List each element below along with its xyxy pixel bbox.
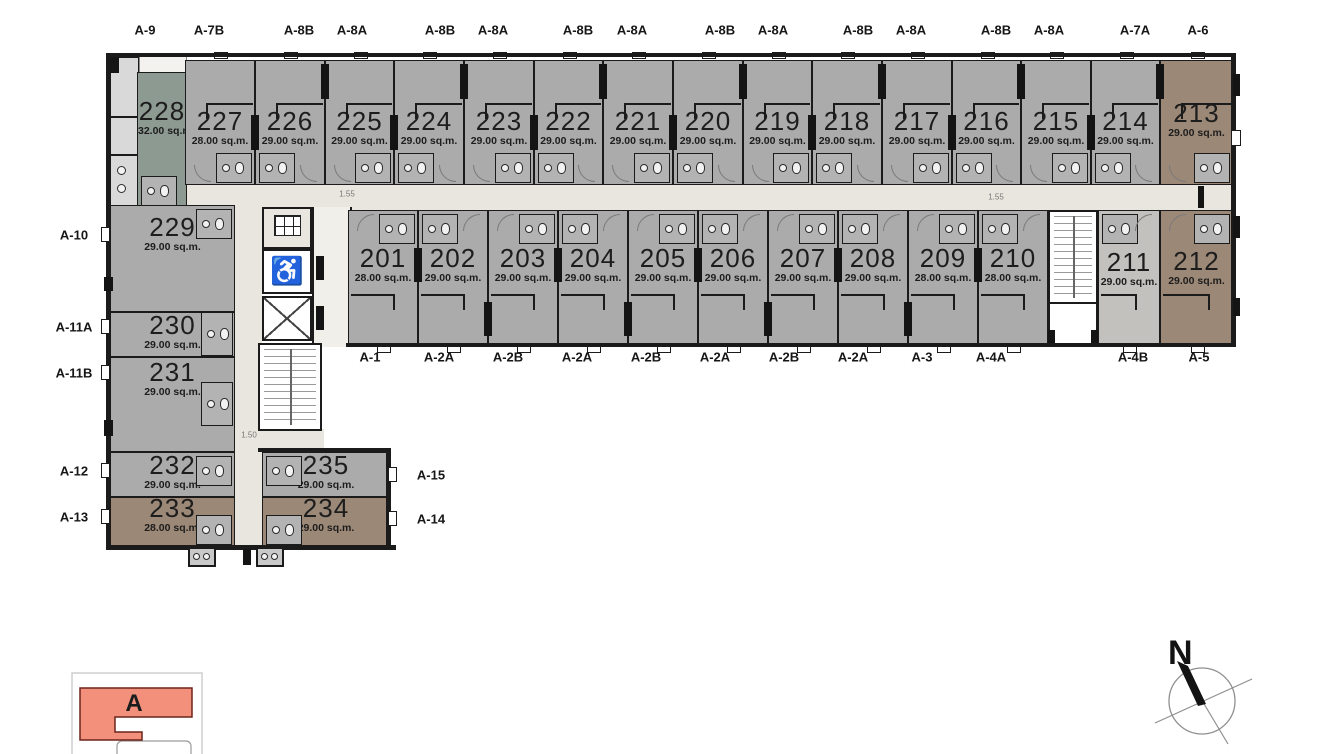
bathroom [562,214,598,244]
ac-fan [193,553,200,560]
unit-number: 214 [1092,108,1159,134]
bathroom [1102,214,1138,244]
door-arc [473,165,490,182]
window-marker [101,463,110,478]
wall-pier [624,302,632,336]
outer-wall [258,448,390,452]
sink-fixture [404,164,412,172]
toilet-fixture [235,162,244,174]
unit-208: 20829.00 sq.m. [838,210,908,345]
compass-north-label: N [1168,634,1193,672]
wall-pier [414,248,422,282]
wall-pier [878,64,886,99]
type-label-A-8A: A-8A [478,23,508,38]
sink-fixture [1058,164,1066,172]
partition-wall [981,294,1025,296]
type-label-A-4B: A-4B [1118,350,1148,365]
unit-222: 22229.00 sq.m. [534,60,603,185]
wall-pier [834,248,842,282]
wall-pier [104,420,113,436]
toilet-fixture [417,162,426,174]
type-label-A-12: A-12 [60,464,88,479]
partition-wall [111,116,138,118]
partition-wall [743,294,745,310]
type-label-A-5: A-5 [1189,350,1210,365]
wall-pier [599,64,607,99]
type-label-A-4A: A-4A [976,350,1006,365]
sink-fixture [665,225,673,233]
unit-206: 20629.00 sq.m. [698,210,768,345]
wall-pier [974,248,982,282]
type-label-A-14: A-14 [417,512,445,527]
toilet-fixture [932,162,941,174]
unit-number: 220 [674,108,742,134]
partition-wall [555,103,601,105]
type-label-A-7A: A-7A [1120,23,1150,38]
door-arc [603,214,620,231]
unit-number: 211 [1099,249,1159,275]
bathroom [956,153,992,183]
toilet-fixture [818,223,827,235]
partition-wall [764,103,810,105]
door-arc [752,165,769,182]
unit-226: 22629.00 sq.m. [255,60,325,185]
type-label-A-2A: A-2A [838,350,868,365]
sink-fixture [962,164,970,172]
partition-wall [701,294,745,296]
unit-202: 20229.00 sq.m. [418,210,488,345]
wall-pier [460,64,468,99]
unit-233: 23328.00 sq.m. [110,497,235,547]
unit-number: 223 [465,108,533,134]
partition-wall [555,103,557,119]
wall-pier [694,248,702,282]
unit-label: 22129.00 sq.m. [604,108,672,147]
sink-fixture [1101,164,1109,172]
type-label-A-2B: A-2B [769,350,799,365]
unit-label: 21829.00 sq.m. [813,108,881,147]
type-label-A-8B: A-8B [843,23,873,38]
stair-divider [290,349,292,425]
unit-number: 228 [138,98,186,124]
sink-fixture [428,225,436,233]
wall-pier [484,302,492,336]
unit-number: 209 [909,245,977,271]
partition-wall [491,294,535,296]
partition-wall [673,294,675,310]
unit-label: 21229.00 sq.m. [1161,248,1232,287]
unit-number: 201 [349,245,417,271]
partition-wall [603,294,605,310]
unit-area: 29.00 sq.m. [699,272,767,284]
partition-wall [346,103,348,119]
door-arc [637,214,654,231]
type-label-A-8B: A-8B [981,23,1011,38]
unit-label: 22429.00 sq.m. [395,108,463,147]
toilet-fixture [220,398,229,410]
unit-216: 21629.00 sq.m. [952,60,1021,185]
wall-pier [764,302,772,336]
unit-number: 207 [769,245,837,271]
toilet-fixture [721,223,730,235]
partition-wall [1042,103,1089,105]
bathroom [519,214,555,244]
partition-wall [973,103,975,119]
bathroom [196,456,232,486]
partition-wall [953,294,955,310]
unit-label: 20529.00 sq.m. [629,245,697,284]
bathroom [216,153,252,183]
unit-232: 23229.00 sq.m. [110,452,235,497]
partition-wall [911,294,955,296]
sink-fixture [265,164,273,172]
window-marker [388,467,397,482]
toilet-fixture [678,223,687,235]
type-label-A-2A: A-2A [562,350,592,365]
type-label-A-8B: A-8B [705,23,735,38]
door-arc [891,165,908,182]
unit-number: 225 [326,108,393,134]
window-marker [101,319,110,334]
bathroom [939,214,975,244]
unit-220: 22029.00 sq.m. [673,60,743,185]
unit-number: 203 [489,245,557,271]
toilet-fixture [215,465,224,477]
type-label-A-2A: A-2A [424,350,454,365]
outer-wall [108,53,1235,57]
bathroom [422,214,458,244]
unit-area: 29.00 sq.m. [395,135,463,147]
wall-pier [243,549,251,565]
sink-fixture [708,225,716,233]
balcony-vent [1007,346,1021,353]
ac-ledge [1233,216,1240,238]
partition-wall [833,103,835,119]
wall-pier [904,302,912,336]
unit-number: 210 [979,245,1047,271]
corridor-connector [262,429,324,450]
unit-234: 23429.00 sq.m. [262,497,390,547]
toilet-fixture [160,185,169,197]
unit-label: 21329.00 sq.m. [1161,100,1232,139]
bathroom [266,515,302,545]
washer-fixture [117,184,126,193]
unit-230: 23029.00 sq.m. [110,312,235,357]
type-label-A-8A: A-8A [758,23,788,38]
unit-label: 21929.00 sq.m. [744,108,811,147]
sink-fixture [207,330,215,338]
sink-fixture [919,164,927,172]
unit-label: 22229.00 sq.m. [535,108,602,147]
partition-wall [421,294,465,296]
partition-wall [694,103,741,105]
sink-fixture [272,526,280,534]
unit-number: 218 [813,108,881,134]
wheelchair-icon: ♿ [270,258,304,285]
toilet-fixture [215,524,224,536]
type-label-A-3: A-3 [912,350,933,365]
unit-number: 226 [256,108,324,134]
unit-label: 20928.00 sq.m. [909,245,977,284]
partition-wall [393,294,395,310]
unit-area: 32.00 sq.m. [138,125,186,137]
partition-wall [631,294,675,296]
partition-wall [206,103,253,105]
type-label-A-11A: A-11A [56,320,93,335]
unit-label: 20329.00 sq.m. [489,245,557,284]
unit-224: 22429.00 sq.m. [394,60,464,185]
unit-area: 29.00 sq.m. [953,135,1020,147]
key-other-building-outline [117,741,191,754]
unit-area: 28.00 sq.m. [186,135,254,147]
door-arc [1169,165,1186,182]
bathroom [982,214,1018,244]
wall-pier [321,64,329,99]
unit-203: 20329.00 sq.m. [488,210,558,345]
toilet-fixture [514,162,523,174]
unit-label: 21529.00 sq.m. [1022,108,1090,147]
sink-fixture [683,164,691,172]
bathroom [398,153,434,183]
unit-label: 22832.00 sq.m. [138,98,186,137]
partition-wall [771,294,815,296]
unit-219: 21929.00 sq.m. [743,60,812,185]
unit-212: 21229.00 sq.m. [1160,210,1233,345]
unit-221: 22129.00 sq.m. [603,60,673,185]
unit-number: 204 [559,245,627,271]
stairwell-east [1048,210,1098,304]
sink-fixture [202,526,210,534]
partition-wall [485,103,532,105]
elevator-shaft [262,296,312,341]
window-marker [388,511,397,526]
unit-label: 20729.00 sq.m. [769,245,837,284]
unit-number: 215 [1022,108,1090,134]
floor-plan: N A 22832.00 sq.m.22728.00 sq.m.22629.00… [0,0,1342,754]
type-label-A-8B: A-8B [563,23,593,38]
unit-number: 222 [535,108,602,134]
partition-wall [841,294,885,296]
toilet-fixture [1213,223,1222,235]
wall-pier [1087,115,1095,150]
door-arc [1169,214,1186,231]
sink-fixture [202,220,210,228]
wall-pier [1156,64,1164,99]
toilet-fixture [374,162,383,174]
unit-label: 22728.00 sq.m. [186,108,254,147]
type-label-A-2B: A-2B [631,350,661,365]
unit-label: 21729.00 sq.m. [883,108,951,147]
partition-wall [764,103,766,119]
unit-area: 29.00 sq.m. [535,135,602,147]
unit-223: 22329.00 sq.m. [464,60,534,185]
unit-area: 29.00 sq.m. [629,272,697,284]
unit-label: 20629.00 sq.m. [699,245,767,284]
toilet-fixture [1001,223,1010,235]
unit-number: 205 [629,245,697,271]
unit-area: 29.00 sq.m. [769,272,837,284]
stairwell-west [258,343,322,431]
unit-number: 221 [604,108,672,134]
door-arc [1023,214,1040,231]
bathroom [141,176,177,206]
partition-wall [1135,294,1137,310]
ac-fan [271,553,278,560]
toilet-fixture [792,162,801,174]
type-label-A-8B: A-8B [425,23,455,38]
unit-area: 29.00 sq.m. [813,135,881,147]
type-label-A-11B: A-11B [56,366,93,381]
wall-pier [739,64,747,99]
elevator-call-button [316,306,324,330]
bathroom [816,153,852,183]
sink-fixture [1200,164,1208,172]
toilet-fixture [538,223,547,235]
partition-wall [463,294,465,310]
unit-label: 22029.00 sq.m. [674,108,742,147]
wall-pier [948,115,956,150]
toilet-fixture [1213,162,1222,174]
compass-icon: N [1148,626,1268,754]
elevator-call-button [316,256,324,280]
service-grid-icon [274,215,301,236]
partition-wall [903,103,950,105]
type-label-A-2B: A-2B [493,350,523,365]
partition-wall [624,103,671,105]
sink-fixture [147,187,155,195]
bathroom [266,456,302,486]
sink-fixture [805,225,813,233]
partition-wall [415,103,417,119]
partition-wall [206,103,208,119]
toilet-fixture [1071,162,1080,174]
type-label-A-8A: A-8A [896,23,926,38]
type-label-A-15: A-15 [417,468,445,483]
sink-fixture [568,225,576,233]
partition-wall [813,294,815,310]
terrace-area [139,55,187,73]
unit-211: 21129.00 sq.m. [1098,210,1160,345]
type-label-A-8A: A-8A [617,23,647,38]
toilet-fixture [220,328,229,340]
window-marker [101,509,110,524]
sink-fixture [1200,225,1208,233]
bathroom [1194,153,1230,183]
stair-divider [1073,216,1075,298]
door-arc [439,165,456,182]
outer-wall [386,448,391,550]
door-arc [996,165,1013,182]
sink-fixture [544,164,552,172]
window-marker [101,227,110,242]
bathroom [659,214,695,244]
type-label-A-6: A-6 [1188,23,1209,38]
unit-area: 29.00 sq.m. [256,135,324,147]
unit-area: 29.00 sq.m. [111,241,234,253]
washer-fixture [117,166,126,175]
unit-label: 21629.00 sq.m. [953,108,1020,147]
toilet-fixture [1114,162,1123,174]
toilet-fixture [285,524,294,536]
unit-231: 23129.00 sq.m. [110,357,235,452]
unit-210: 21028.00 sq.m. [978,210,1048,345]
balcony-vent [867,346,881,353]
unit-area: 29.00 sq.m. [839,272,907,284]
ac-unit-box [188,547,216,567]
partition-wall [1181,103,1231,105]
ac-fan [261,553,268,560]
corridor-door-leaf [1198,186,1204,208]
bathroom [538,153,574,183]
bathroom [355,153,391,183]
partition-wall [276,103,278,119]
sink-fixture [945,225,953,233]
partition-wall [1042,103,1044,119]
sink-fixture [822,164,830,172]
door-arc [334,165,351,182]
type-label-A-10: A-10 [60,228,88,243]
toilet-fixture [835,162,844,174]
partition-wall [1112,103,1114,119]
partition-wall [903,103,905,119]
unit-227: 22728.00 sq.m. [185,60,255,185]
sink-fixture [848,225,856,233]
door-arc [357,214,374,231]
partition-wall [1181,103,1183,119]
window-box [1231,130,1241,146]
sink-fixture [640,164,648,172]
unit-area: 28.00 sq.m. [979,272,1047,284]
ac-fan [203,553,210,560]
sink-fixture [779,164,787,172]
wall-pier [1017,64,1025,99]
unit-number: 216 [953,108,1020,134]
unit-label: 22629.00 sq.m. [256,108,324,147]
bathroom [702,214,738,244]
unit-area: 29.00 sq.m. [1161,275,1232,287]
service-room [262,207,312,249]
door-arc [463,214,480,231]
unit-area: 29.00 sq.m. [744,135,811,147]
partition-wall [694,103,696,119]
ac-unit-box [256,547,284,567]
dimension-text: 1.50 [241,431,257,440]
wall-pier [808,115,816,150]
wall-pier [554,248,562,282]
unit-area: 29.00 sq.m. [1161,127,1232,139]
unit-225: 22529.00 sq.m. [325,60,394,185]
unit-number: 212 [1161,248,1232,274]
door-arc [1030,165,1047,182]
unit-area: 29.00 sq.m. [559,272,627,284]
toilet-fixture [581,223,590,235]
toilet-fixture [958,223,967,235]
partition-wall [561,294,605,296]
unit-number: 208 [839,245,907,271]
type-label-A-2A: A-2A [700,350,730,365]
unit-217: 21729.00 sq.m. [882,60,952,185]
door-arc [612,165,629,182]
unit-label: 22529.00 sq.m. [326,108,393,147]
sink-fixture [361,164,369,172]
partition-wall [1101,294,1137,296]
building-key: A [68,668,213,754]
wall-pier [390,115,398,150]
unit-area: 29.00 sq.m. [326,135,393,147]
unit-201: 20128.00 sq.m. [348,210,418,345]
unit-204: 20429.00 sq.m. [558,210,628,345]
door-arc [883,214,900,231]
